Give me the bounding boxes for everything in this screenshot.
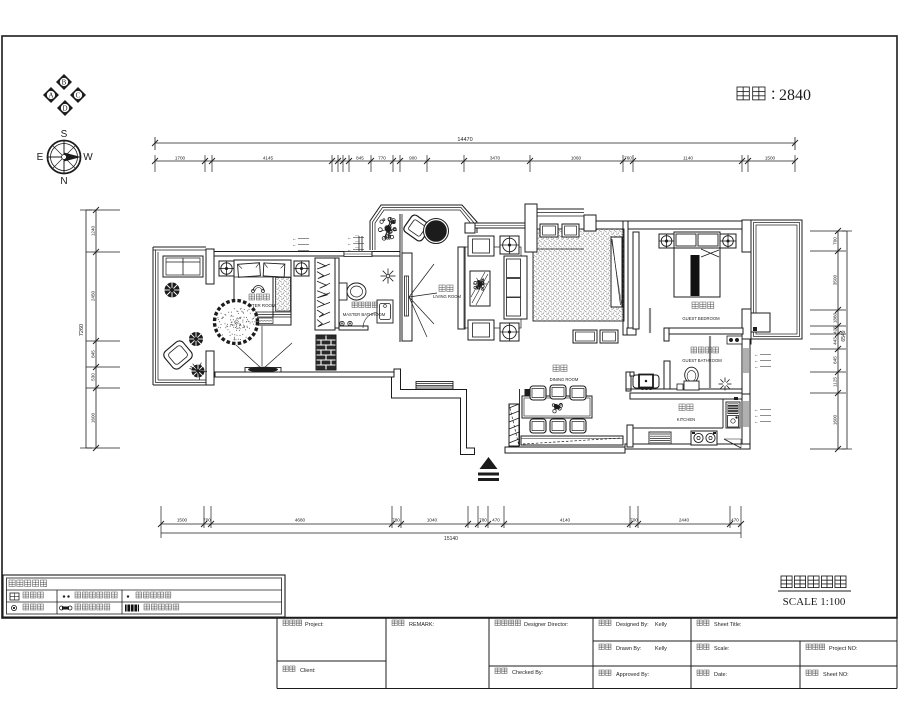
svg-text:645: 645: [833, 356, 838, 364]
svg-text:←: ←: [754, 352, 759, 357]
svg-text:1700: 1700: [175, 156, 186, 161]
svg-text:←: ←: [347, 235, 352, 240]
svg-text:470: 470: [731, 518, 739, 523]
svg-text:SCALE 1:100: SCALE 1:100: [783, 596, 846, 608]
svg-text:Project:: Project:: [305, 622, 324, 628]
svg-text:←: ←: [347, 241, 352, 246]
svg-text:1125: 1125: [833, 377, 838, 387]
svg-text:700: 700: [203, 518, 211, 523]
svg-text:14470: 14470: [457, 137, 472, 143]
svg-text:←: ←: [292, 248, 297, 253]
svg-text:1600: 1600: [833, 414, 838, 425]
svg-text:KITCHEN: KITCHEN: [677, 417, 695, 422]
svg-text:1040: 1040: [427, 518, 438, 523]
svg-text:3470: 3470: [490, 156, 501, 161]
svg-text:780: 780: [392, 518, 400, 523]
svg-text:1860: 1860: [833, 312, 838, 323]
svg-text:700: 700: [630, 518, 638, 523]
svg-text:845: 845: [91, 350, 96, 358]
svg-text:N: N: [60, 176, 67, 187]
svg-text:A: A: [48, 92, 53, 100]
svg-text:425: 425: [833, 326, 838, 334]
svg-text:Drawn By:: Drawn By:: [616, 646, 642, 652]
svg-text:7260: 7260: [79, 324, 85, 336]
svg-text:C: C: [76, 92, 81, 100]
svg-text:Scale:: Scale:: [714, 646, 730, 652]
svg-text:E: E: [37, 152, 44, 163]
svg-text:2440: 2440: [679, 518, 690, 523]
svg-text:DINING ROOM: DINING ROOM: [550, 377, 579, 382]
svg-text:900: 900: [409, 156, 417, 161]
svg-text:4140: 4140: [560, 518, 571, 523]
svg-text:~~: ~~: [355, 240, 359, 244]
svg-text:B: B: [62, 79, 67, 87]
svg-text:4145: 4145: [263, 156, 274, 161]
svg-text:2450: 2450: [91, 290, 96, 301]
svg-text:~~: ~~: [355, 246, 359, 250]
svg-text:1140: 1140: [683, 156, 693, 161]
svg-text:Kelly: Kelly: [655, 622, 667, 628]
svg-text:D: D: [62, 105, 67, 113]
svg-text:1600: 1600: [91, 412, 96, 423]
svg-text:700: 700: [833, 237, 838, 245]
svg-text:←: ←: [754, 364, 759, 369]
svg-text:770: 770: [378, 156, 386, 161]
svg-text:←: ←: [292, 236, 297, 241]
svg-text:Date:: Date:: [714, 672, 728, 678]
svg-text:W: W: [83, 152, 93, 163]
svg-text:Sheet Title:: Sheet Title:: [714, 622, 742, 628]
svg-text:Approved By:: Approved By:: [616, 672, 649, 678]
svg-text:443: 443: [833, 337, 838, 345]
svg-text:Kelly: Kelly: [655, 646, 667, 652]
svg-text:1500: 1500: [177, 518, 188, 523]
svg-text:←: ←: [754, 407, 759, 412]
svg-text:Project NO:: Project NO:: [829, 646, 858, 652]
svg-text:←: ←: [754, 419, 759, 424]
svg-text:470: 470: [492, 518, 500, 523]
svg-text:1240: 1240: [91, 225, 96, 236]
svg-text:1060: 1060: [571, 156, 582, 161]
svg-text:530: 530: [91, 373, 96, 381]
svg-text:Sheet NO:: Sheet NO:: [823, 672, 849, 678]
svg-text:2840: 2840: [779, 87, 811, 104]
svg-text:4680: 4680: [295, 518, 306, 523]
svg-text:6549: 6549: [841, 330, 847, 341]
svg-text:845: 845: [356, 156, 364, 161]
svg-text:~~: ~~: [355, 234, 359, 238]
svg-text:MASTER BATHROOM: MASTER BATHROOM: [343, 312, 386, 317]
svg-text:780: 780: [479, 518, 487, 523]
svg-text:←: ←: [347, 247, 352, 252]
svg-text:REMARK:: REMARK:: [409, 622, 435, 628]
svg-text:←: ←: [754, 358, 759, 363]
svg-text:1500: 1500: [765, 156, 776, 161]
svg-text:LIVING ROOM: LIVING ROOM: [433, 294, 461, 299]
svg-text:Checked By:: Checked By:: [512, 670, 544, 676]
svg-text:Designed By:: Designed By:: [616, 622, 649, 628]
svg-text:←: ←: [292, 242, 297, 247]
svg-text:3500: 3500: [833, 274, 838, 285]
svg-text:GUEST BEDROOM: GUEST BEDROOM: [682, 316, 720, 321]
svg-text:Client:: Client:: [300, 668, 316, 674]
svg-text:S: S: [61, 129, 68, 140]
svg-text:GUEST BATHROOM: GUEST BATHROOM: [682, 358, 722, 363]
svg-text:760: 760: [624, 156, 632, 161]
svg-text:15140: 15140: [444, 536, 458, 542]
svg-text:Designer Director:: Designer Director:: [524, 622, 569, 628]
svg-text:←: ←: [754, 413, 759, 418]
